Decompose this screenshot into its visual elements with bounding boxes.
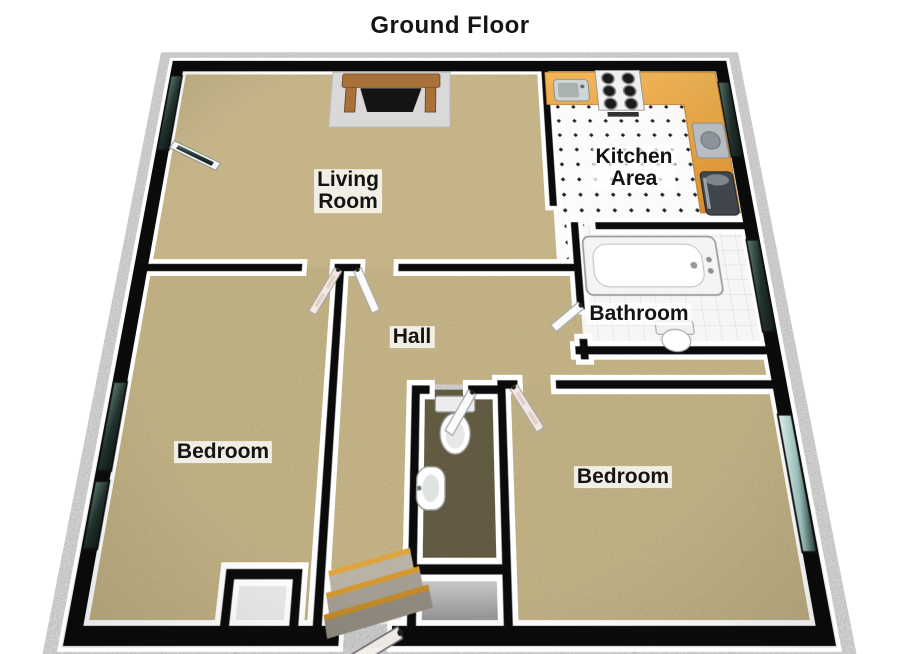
room-label-kitchen-area: Kitchen Area xyxy=(592,146,675,190)
room-label-bedroom-right: Bedroom xyxy=(574,466,672,488)
floorplan-page: Ground Floor xyxy=(0,0,900,654)
room-label-bathroom: Bathroom xyxy=(586,303,691,325)
floorplan-3d-view xyxy=(61,60,838,648)
lighting-vignette xyxy=(61,60,838,648)
page-title: Ground Floor xyxy=(370,12,529,40)
room-label-bedroom-left: Bedroom xyxy=(174,441,272,463)
room-label-living-room: Living Room xyxy=(314,169,382,213)
floorplan-rendering xyxy=(61,60,838,648)
room-label-hall: Hall xyxy=(390,326,435,348)
